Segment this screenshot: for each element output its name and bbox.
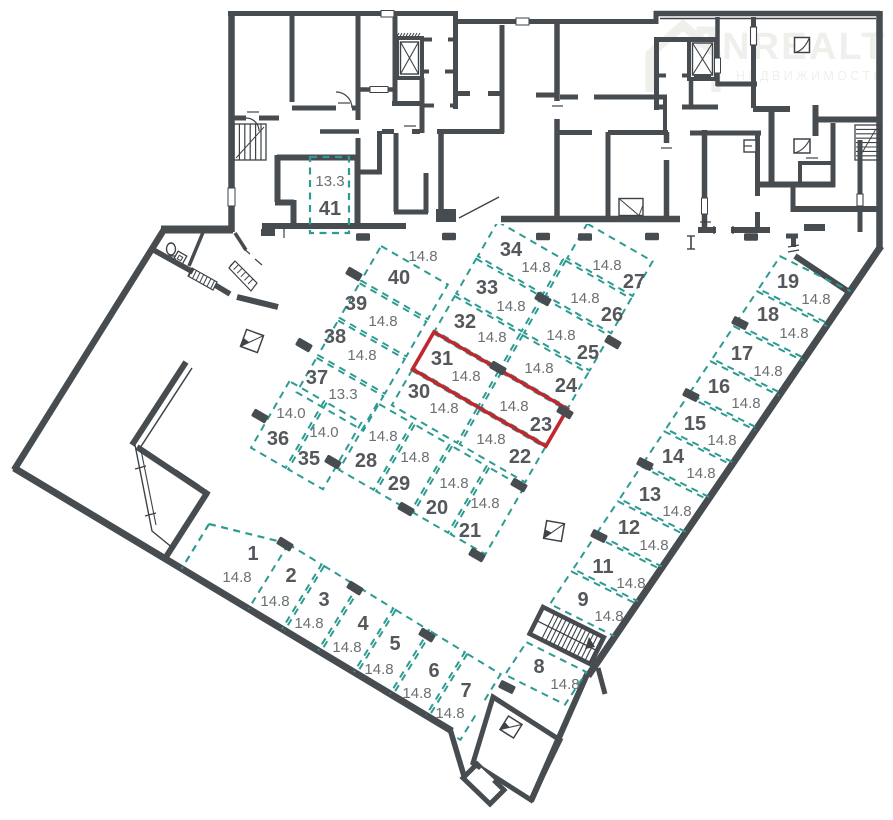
svg-text:5: 5	[389, 633, 400, 655]
svg-text:14: 14	[662, 446, 685, 468]
svg-text:14.8: 14.8	[592, 257, 621, 274]
svg-text:14.8: 14.8	[476, 431, 505, 448]
svg-text:23: 23	[530, 414, 552, 436]
svg-text:27: 27	[623, 271, 645, 293]
svg-text:14.8: 14.8	[402, 685, 431, 702]
svg-text:30: 30	[408, 381, 430, 403]
svg-text:14.8: 14.8	[332, 639, 361, 656]
svg-text:14.8: 14.8	[707, 432, 736, 449]
svg-text:20: 20	[426, 497, 448, 519]
svg-text:38: 38	[324, 326, 346, 348]
svg-text:31: 31	[431, 348, 453, 370]
svg-text:41: 41	[319, 198, 341, 220]
svg-text:НЕДВИЖИМОСТЬ: НЕДВИЖИМОСТЬ	[736, 69, 885, 83]
svg-text:14.8: 14.8	[499, 398, 528, 415]
svg-text:14.8: 14.8	[429, 400, 458, 417]
svg-text:8: 8	[533, 656, 544, 678]
svg-text:14.8: 14.8	[550, 676, 579, 693]
svg-text:2: 2	[285, 565, 296, 587]
svg-text:40: 40	[388, 267, 410, 289]
svg-text:14.8: 14.8	[686, 465, 715, 482]
svg-text:14.8: 14.8	[400, 449, 429, 466]
svg-text:14.8: 14.8	[570, 290, 599, 307]
svg-text:14.8: 14.8	[222, 569, 251, 586]
svg-text:14.8: 14.8	[801, 291, 830, 308]
svg-text:13: 13	[639, 484, 661, 506]
svg-text:12: 12	[618, 517, 640, 539]
svg-text:17: 17	[731, 343, 753, 365]
svg-text:15: 15	[684, 413, 706, 435]
svg-text:14.8: 14.8	[408, 248, 437, 265]
svg-text:14.8: 14.8	[753, 363, 782, 380]
svg-text:14.8: 14.8	[470, 495, 499, 512]
svg-text:25: 25	[577, 342, 599, 364]
svg-text:35: 35	[298, 448, 320, 470]
svg-text:14.8: 14.8	[594, 608, 623, 625]
svg-text:13.3: 13.3	[328, 386, 357, 403]
svg-text:14.8: 14.8	[546, 327, 575, 344]
svg-text:14.8: 14.8	[779, 325, 808, 342]
svg-text:37: 37	[306, 367, 328, 389]
svg-text:18: 18	[757, 304, 779, 326]
svg-text:36: 36	[267, 428, 289, 450]
svg-text:11: 11	[592, 556, 613, 578]
svg-text:7: 7	[460, 680, 471, 702]
svg-text:26: 26	[601, 304, 623, 326]
svg-text:14.8: 14.8	[521, 259, 550, 276]
svg-text:24: 24	[555, 375, 578, 397]
svg-text:28: 28	[355, 450, 377, 472]
svg-text:14.8: 14.8	[347, 347, 376, 364]
svg-text:14.8: 14.8	[364, 661, 393, 678]
svg-text:13.3: 13.3	[315, 173, 344, 190]
svg-text:4: 4	[357, 613, 369, 635]
svg-text:16: 16	[708, 376, 730, 398]
svg-text:14.8: 14.8	[260, 593, 289, 610]
svg-text:14.8: 14.8	[616, 575, 645, 592]
svg-text:14.8: 14.8	[662, 503, 691, 520]
svg-text:14.8: 14.8	[439, 475, 468, 492]
svg-text:29: 29	[388, 473, 410, 495]
svg-text:14.8: 14.8	[368, 313, 397, 330]
svg-text:14.8: 14.8	[451, 368, 480, 385]
svg-text:22: 22	[509, 446, 531, 468]
svg-text:14.8: 14.8	[524, 360, 553, 377]
svg-text:1: 1	[247, 543, 258, 565]
svg-text:14.8: 14.8	[639, 537, 668, 554]
svg-text:14.0: 14.0	[276, 405, 305, 422]
svg-text:6: 6	[428, 660, 439, 682]
svg-text:21: 21	[459, 520, 481, 542]
svg-text:14.8: 14.8	[294, 615, 323, 632]
svg-text:3: 3	[318, 589, 329, 611]
svg-text:14.8: 14.8	[731, 395, 760, 412]
svg-text:14.8: 14.8	[368, 428, 397, 445]
svg-text:19: 19	[777, 271, 799, 293]
svg-text:34: 34	[500, 239, 523, 261]
svg-text:14.8: 14.8	[496, 298, 525, 315]
svg-text:9: 9	[577, 589, 588, 611]
svg-text:14.0: 14.0	[309, 424, 338, 441]
svg-text:14.8: 14.8	[477, 329, 506, 346]
svg-text:39: 39	[345, 293, 367, 315]
svg-text:33: 33	[476, 277, 498, 299]
svg-text:32: 32	[454, 311, 476, 333]
svg-text:14.8: 14.8	[435, 705, 464, 722]
